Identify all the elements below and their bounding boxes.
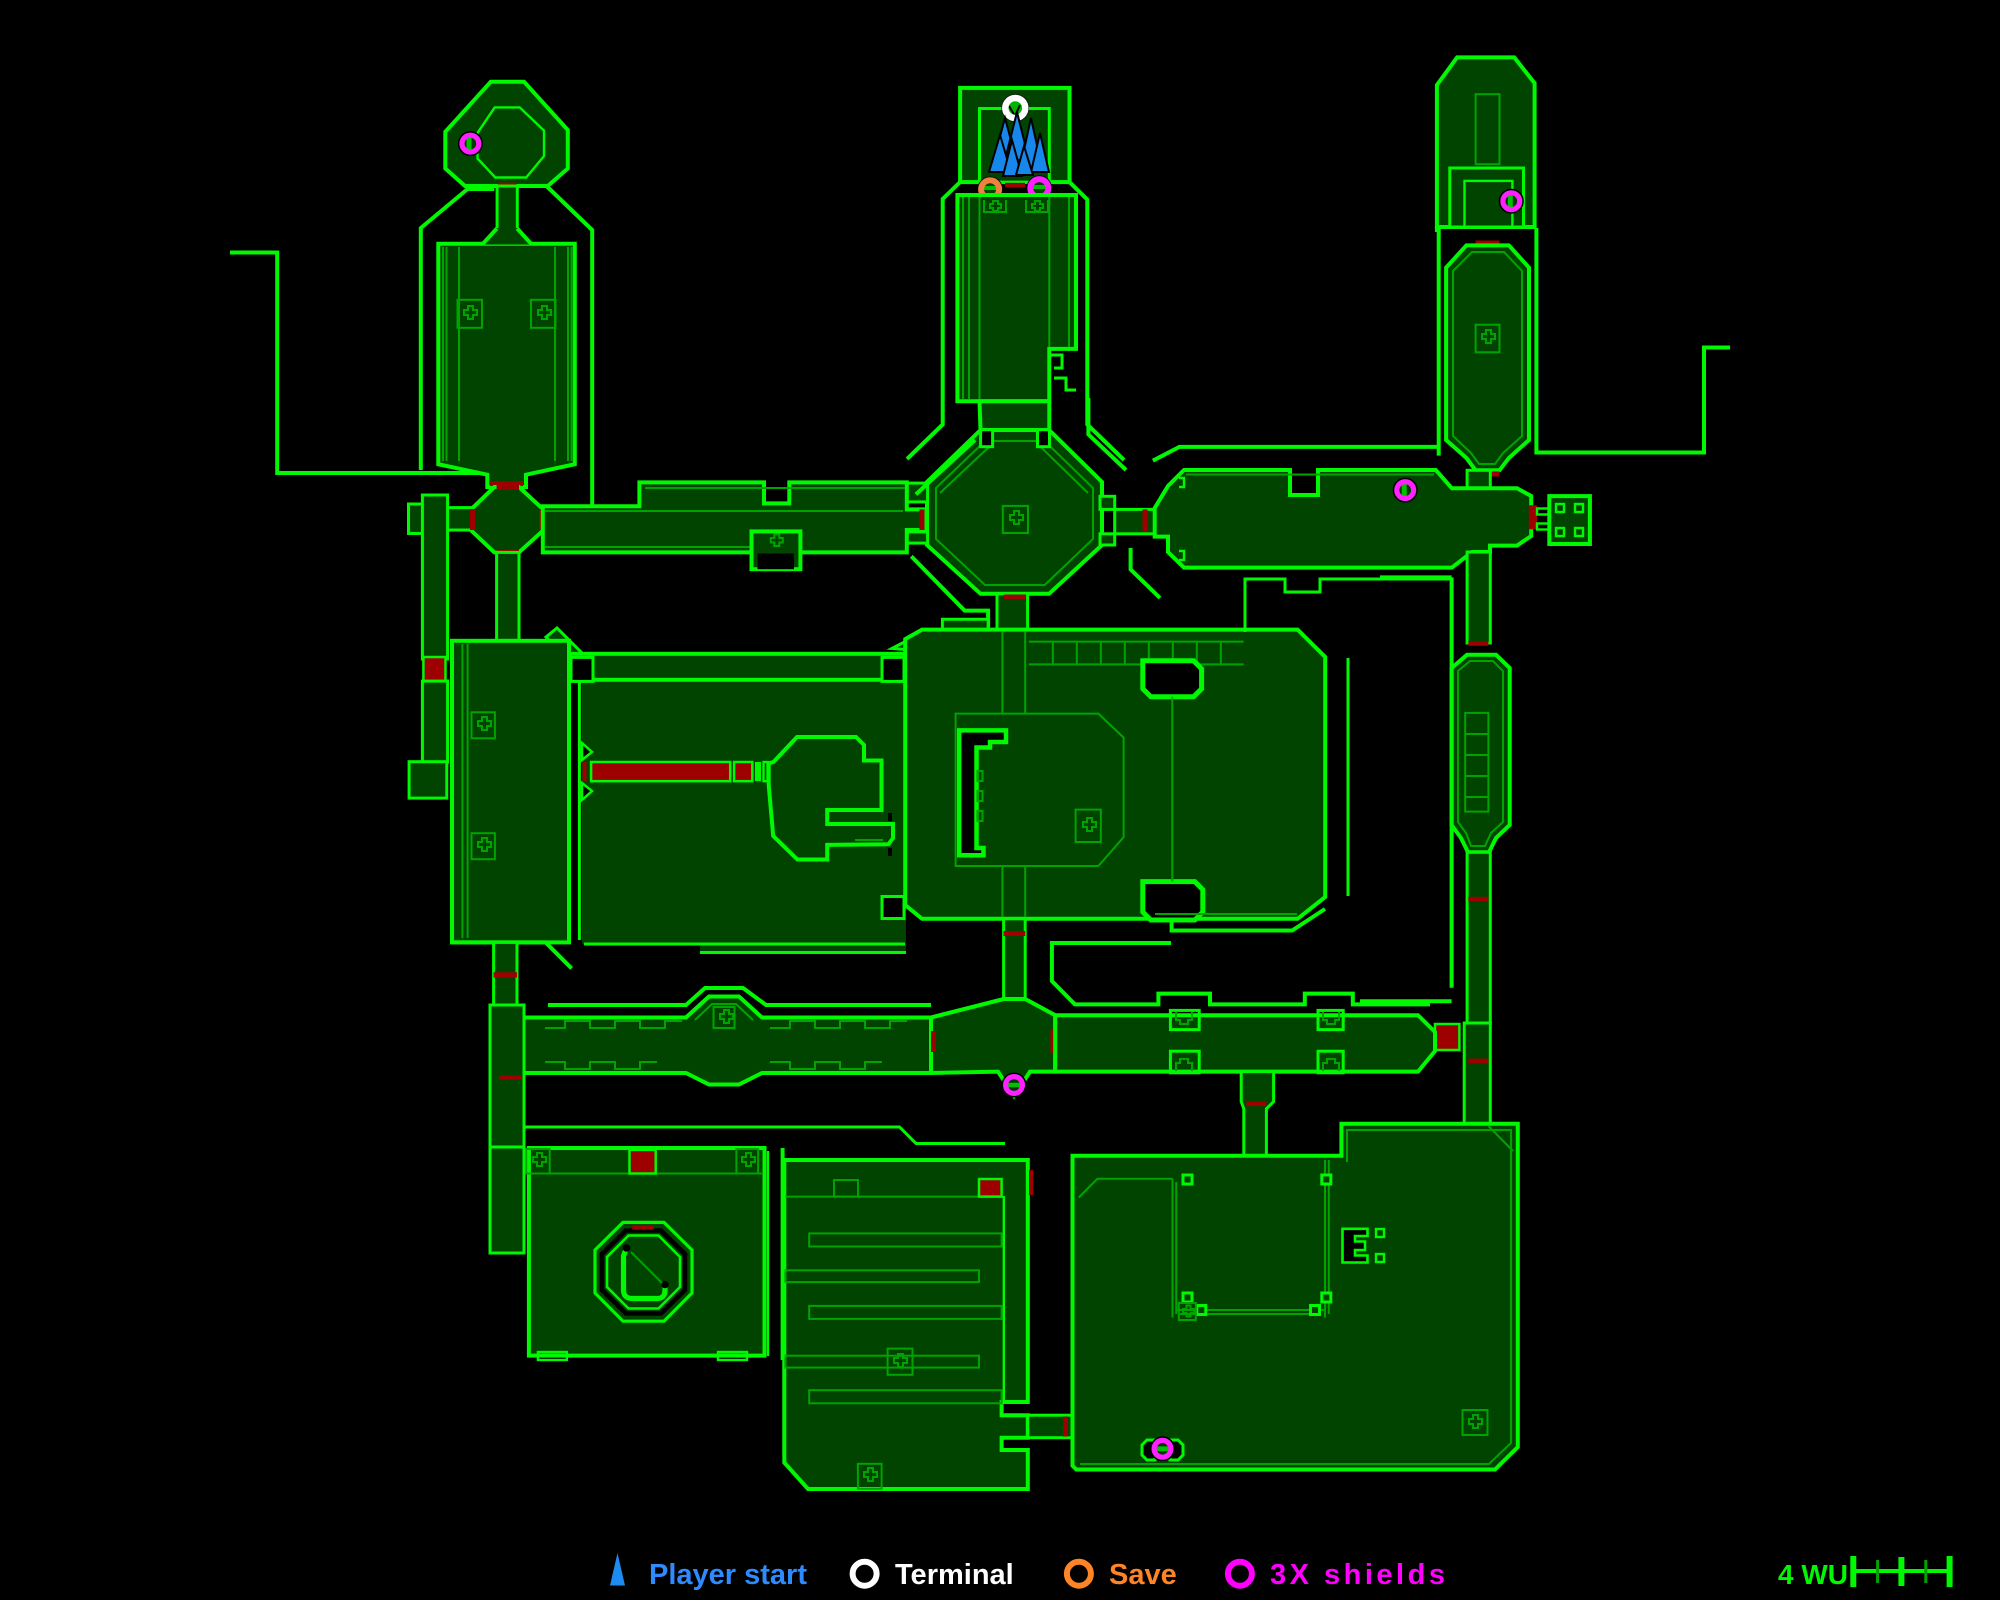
svg-text:Player start: Player start [649, 1559, 807, 1591]
svg-text:Save: Save [1109, 1559, 1177, 1591]
svg-text:4 WU: 4 WU [1778, 1559, 1848, 1590]
svg-text:3X shields: 3X shields [1270, 1559, 1448, 1591]
svg-text:Terminal: Terminal [895, 1559, 1014, 1591]
